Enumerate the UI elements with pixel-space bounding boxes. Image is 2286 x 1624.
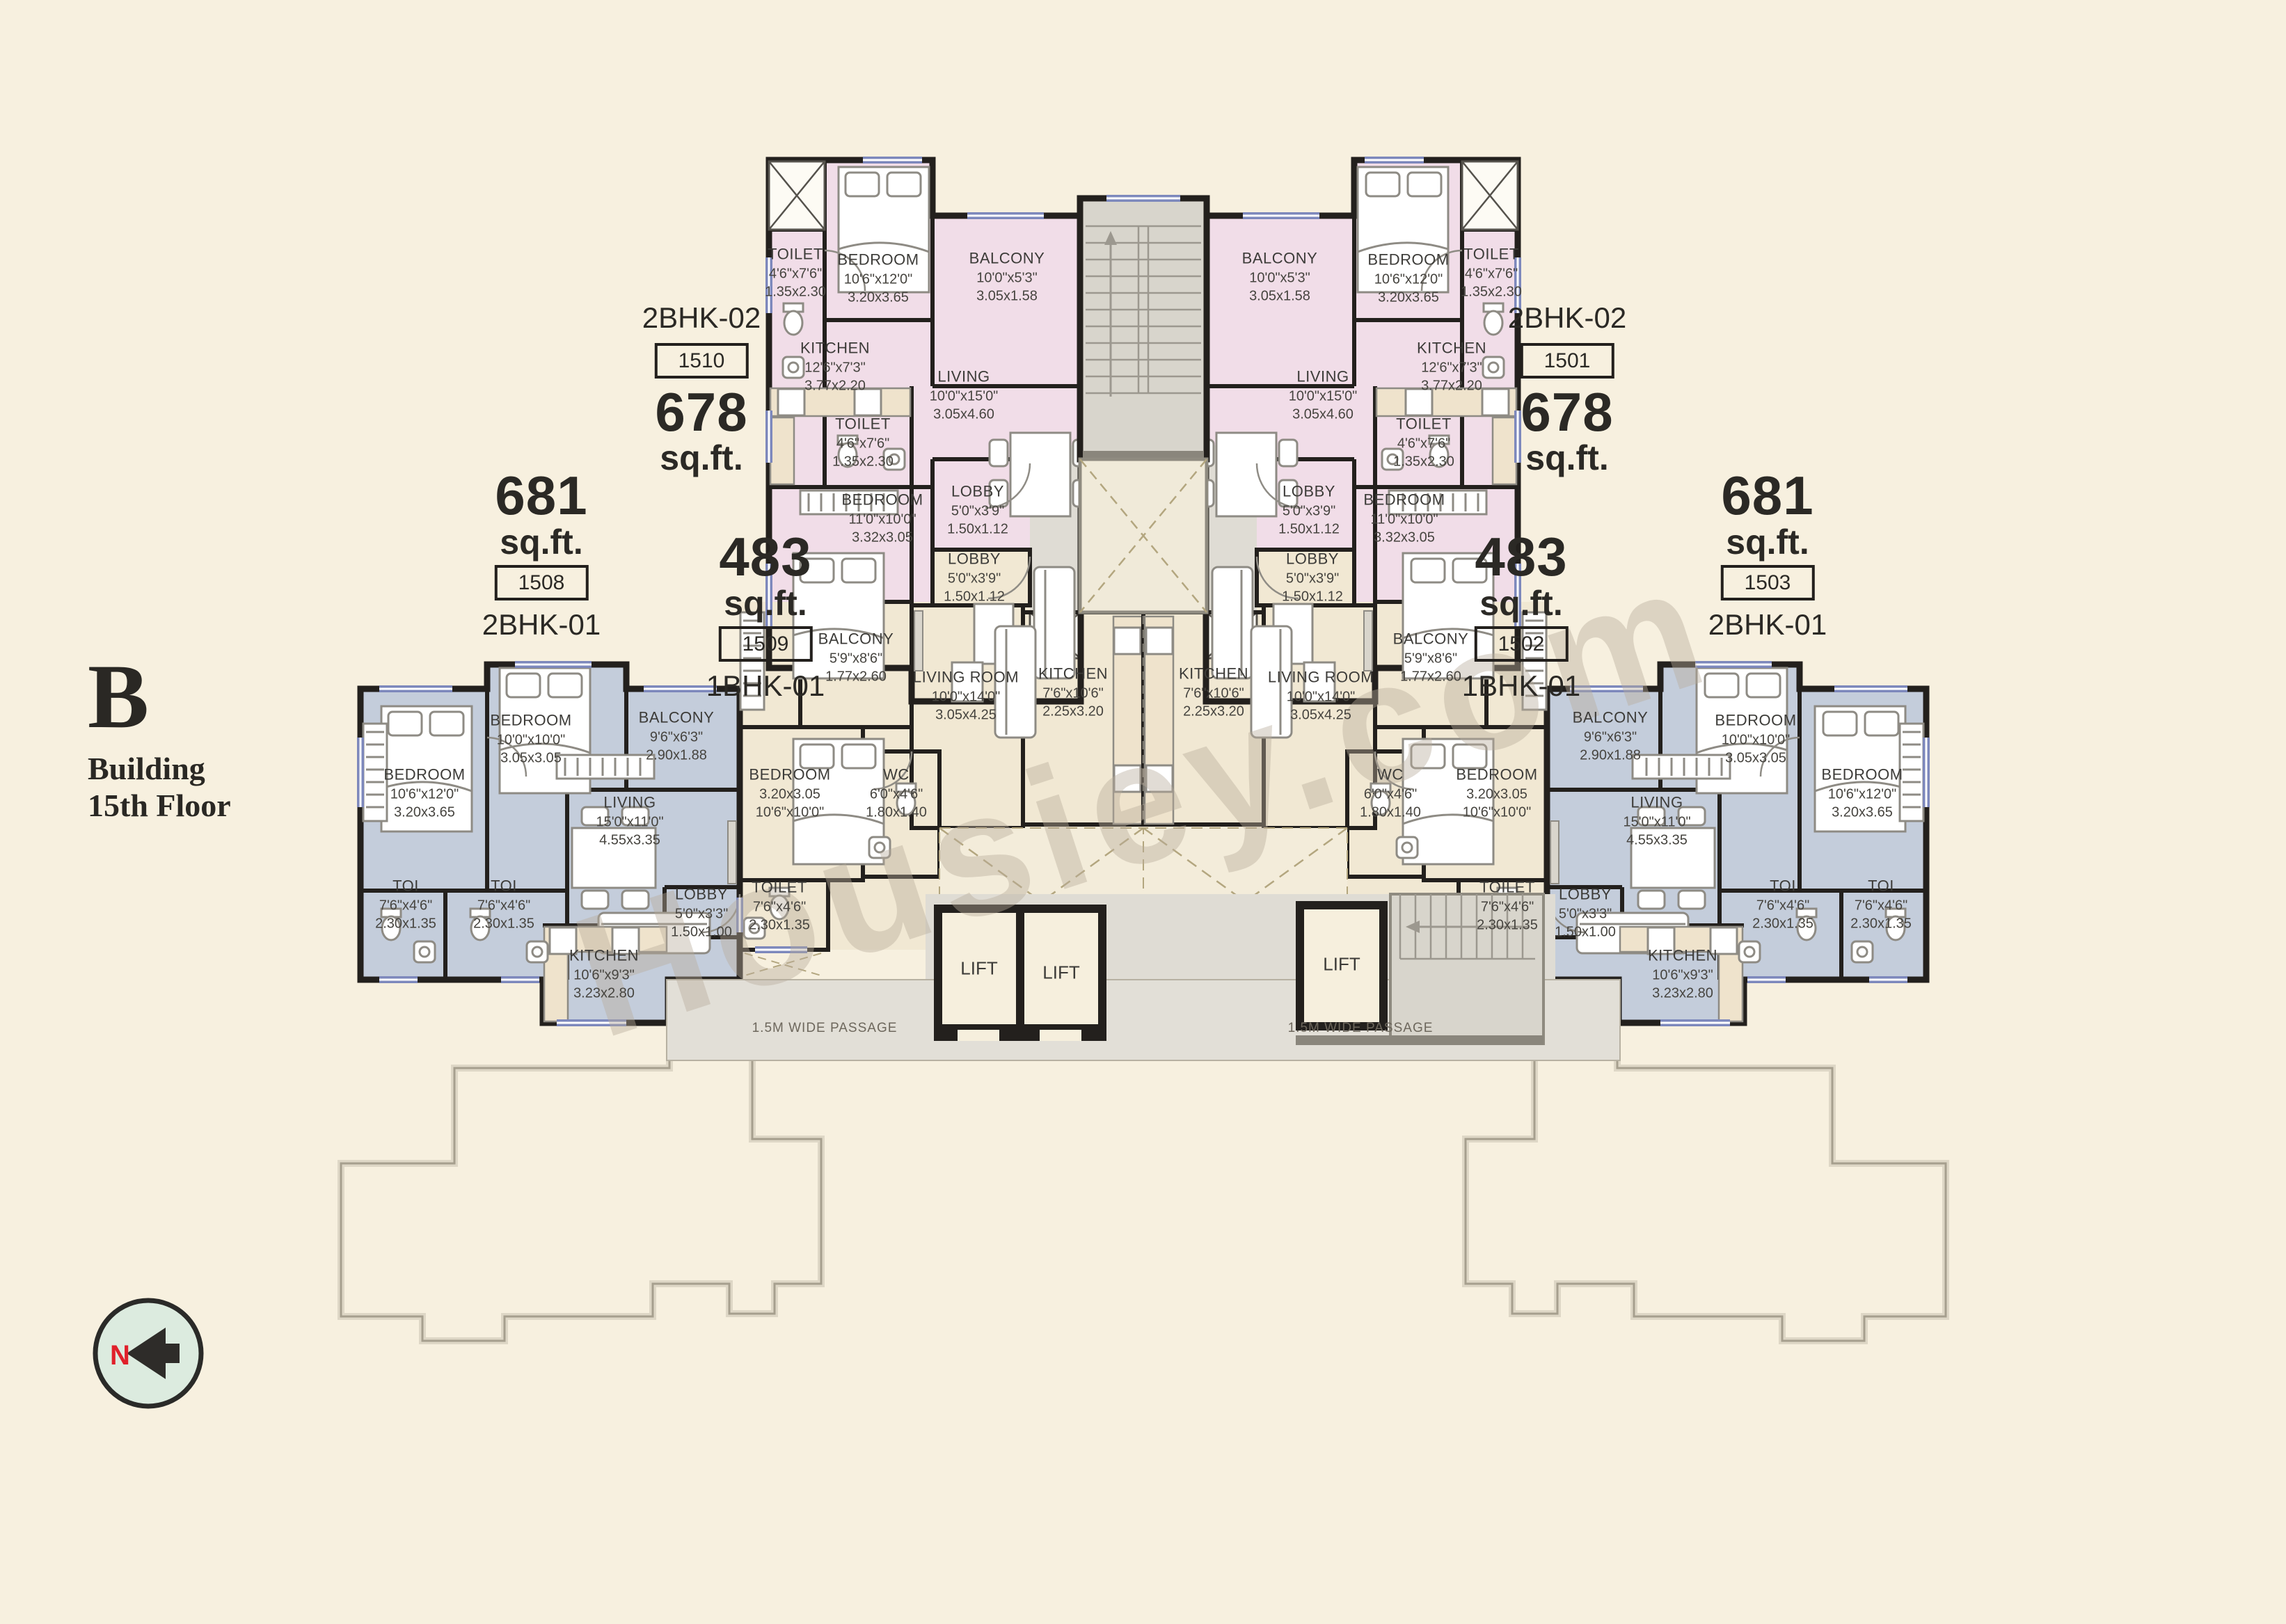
room-label-kitchen: KITCHEN7'6"x10'6"2.25x3.20 [1038,664,1108,721]
room-label-toilet: TOILET7'6"x4'6"2.30x1.35 [749,878,810,934]
room-label-bedroom2: BEDROOM10'0"x10'0"3.05x3.05 [490,711,571,767]
room-label-kitchen: KITCHEN12'6"x7'3"3.77x2.20 [800,339,870,395]
room-label-toi: TOI7'6"x4'6"2.30x1.35 [375,877,436,933]
room-label-toi: TOI7'6"x4'6"2.30x1.35 [1850,877,1912,933]
lift-label: LIFT [1323,954,1360,976]
room-label-lobby: LOBBY5'0"x3'9"1.50x1.12 [944,550,1005,606]
room-label-toilet2: TOILET4'6"x7'6"1.35x2.30 [832,415,894,471]
building-title: B Building 15th Floor [88,655,231,825]
room-label-bedroom: BEDROOM3.20x3.0510'6"x10'0" [1456,765,1537,822]
room-label-bedroom2: BEDROOM11'0"x10'0"3.32x3.05 [1363,491,1445,547]
room-label-bedroom: BEDROOM10'6"x12'0"3.20x3.65 [1821,765,1903,822]
room-label-living: LIVING15'0"x11'0"4.55x3.35 [596,793,663,850]
building-line1: Building [88,751,205,786]
room-label-bedroom: BEDROOM3.20x3.0510'6"x10'0" [749,765,830,822]
duct-shaft-center [1080,459,1207,612]
room-label-living: LIVING10'0"x15'0"3.05x4.60 [1289,367,1358,424]
area-block-1508: 681 sq.ft. 1508 2BHK-01 [482,468,601,644]
passage-label: 1.5M WIDE PASSAGE [752,1021,898,1036]
room-label-kitchen: KITCHEN10'6"x9'3"3.23x2.80 [569,946,639,1003]
room-label-balcony: BALCONY5'9"x8'6"1.77x2.60 [1393,630,1469,686]
room-label-lobby: LOBBY5'0"x3'9"1.50x1.12 [947,482,1008,539]
north-compass-icon: N [90,1296,206,1411]
room-label-balcony: BALCONY10'0"x5'3"3.05x1.58 [1242,249,1318,305]
room-label-toilet: TOILET7'6"x4'6"2.30x1.35 [1477,878,1538,934]
room-label-toilet2: TOILET4'6"x7'6"1.35x2.30 [1393,415,1454,471]
room-label-toi2: TOI7'6"x4'6"2.30x1.35 [1752,877,1813,933]
room-label-living-room: LIVING ROOM10'0"x14'0"3.05x4.25 [1268,668,1374,724]
room-label-wc: WC6'0"x4'6"1.80x1.40 [1360,765,1421,822]
room-label-kitchen: KITCHEN7'6"x10'6"2.25x3.20 [1179,664,1248,721]
unit-number-1502: 1502 [1475,626,1569,662]
lift-label: LIFT [960,958,997,980]
room-label-toilet: TOILET4'6"x7'6"1.35x2.30 [1461,245,1522,301]
svg-text:N: N [110,1340,130,1371]
room-label-lobby: LOBBY5'0"x3'9"1.50x1.12 [1278,482,1340,539]
room-label-balcony: BALCONY9'6"x6'3"2.90x1.88 [1573,708,1649,765]
area-block-1502: 483 sq.ft. 1502 1BHK-01 [1462,529,1580,705]
lift-label: LIFT [1042,962,1079,984]
room-label-kitchen: KITCHEN10'6"x9'3"3.23x2.80 [1648,946,1717,1003]
building-letter: B [88,655,231,738]
room-label-toilet: TOILET4'6"x7'6"1.35x2.30 [765,245,826,301]
room-label-kitchen: KITCHEN12'6"x7'3"3.77x2.20 [1417,339,1486,395]
area-block-1503: 681 sq.ft. 1503 2BHK-01 [1708,468,1827,644]
area-block-1509: 483 sq.ft. 1509 1BHK-01 [706,529,825,705]
room-label-balcony: BALCONY5'9"x8'6"1.77x2.60 [818,630,894,686]
unit-number-1509: 1509 [719,626,813,662]
room-label-wc: WC6'0"x4'6"1.80x1.40 [866,765,927,822]
room-label-bedroom: BEDROOM10'6"x12'0"3.20x3.65 [1367,250,1449,307]
room-label-toi2: TOI7'6"x4'6"2.30x1.35 [473,877,534,933]
room-label-lobby: LOBBY5'0"x3'3"1.50x1.00 [1555,885,1616,941]
unit-number-1508: 1508 [495,565,589,600]
room-label-bedroom2: BEDROOM10'0"x10'0"3.05x3.05 [1715,711,1796,767]
room-label-living: LIVING10'0"x15'0"3.05x4.60 [930,367,999,424]
room-label-living-room: LIVING ROOM10'0"x14'0"3.05x4.25 [913,668,1019,724]
room-label-lobby: LOBBY5'0"x3'3"1.50x1.00 [671,885,732,941]
room-label-bedroom2: BEDROOM11'0"x10'0"3.32x3.05 [841,491,923,547]
duct-shaft-icon [769,161,825,230]
area-block-1501: 2BHK-02 1501 678 sq.ft. [1508,299,1626,475]
room-label-balcony: BALCONY9'6"x6'3"2.90x1.88 [639,708,715,765]
room-label-balcony: BALCONY10'0"x5'3"3.05x1.58 [969,249,1045,305]
building-line2: 15th Floor [88,788,231,823]
unit-number-1501: 1501 [1521,343,1614,379]
room-label-living: LIVING15'0"x11'0"4.55x3.35 [1623,793,1690,850]
unit-number-1510: 1510 [655,343,749,379]
unit-number-1503: 1503 [1721,565,1815,600]
room-label-lobby: LOBBY5'0"x3'9"1.50x1.12 [1282,550,1343,606]
room-label-bedroom: BEDROOM10'6"x12'0"3.20x3.65 [383,765,465,822]
stairwell-top [1080,198,1207,459]
area-block-1510: 2BHK-02 1510 678 sq.ft. [642,299,761,475]
room-label-bedroom: BEDROOM10'6"x12'0"3.20x3.65 [837,250,919,307]
floor-plan-page: B Building 15th Floor Housiey.com N 2BHK… [0,0,2286,1624]
passage-label: 1.5M WIDE PASSAGE [1288,1021,1434,1036]
